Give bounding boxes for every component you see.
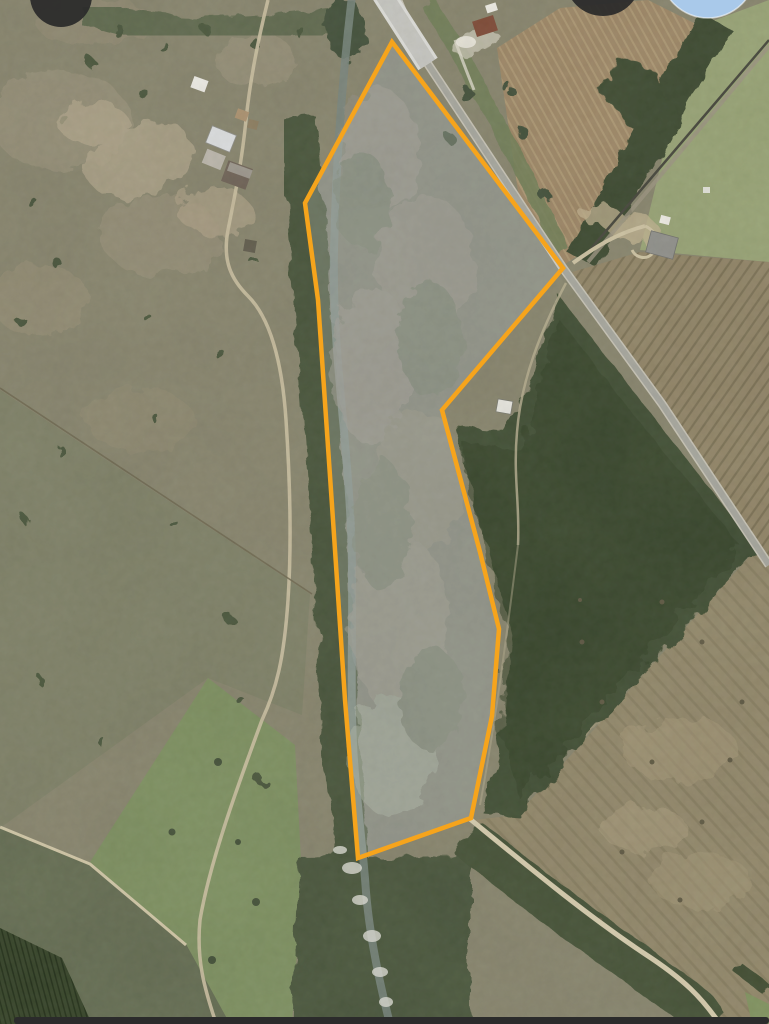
shed-at-notch [496, 399, 513, 414]
map-screen [0, 0, 769, 1024]
satellite-map[interactable] [0, 0, 769, 1024]
bottom-sheet-edge[interactable] [14, 1017, 769, 1024]
